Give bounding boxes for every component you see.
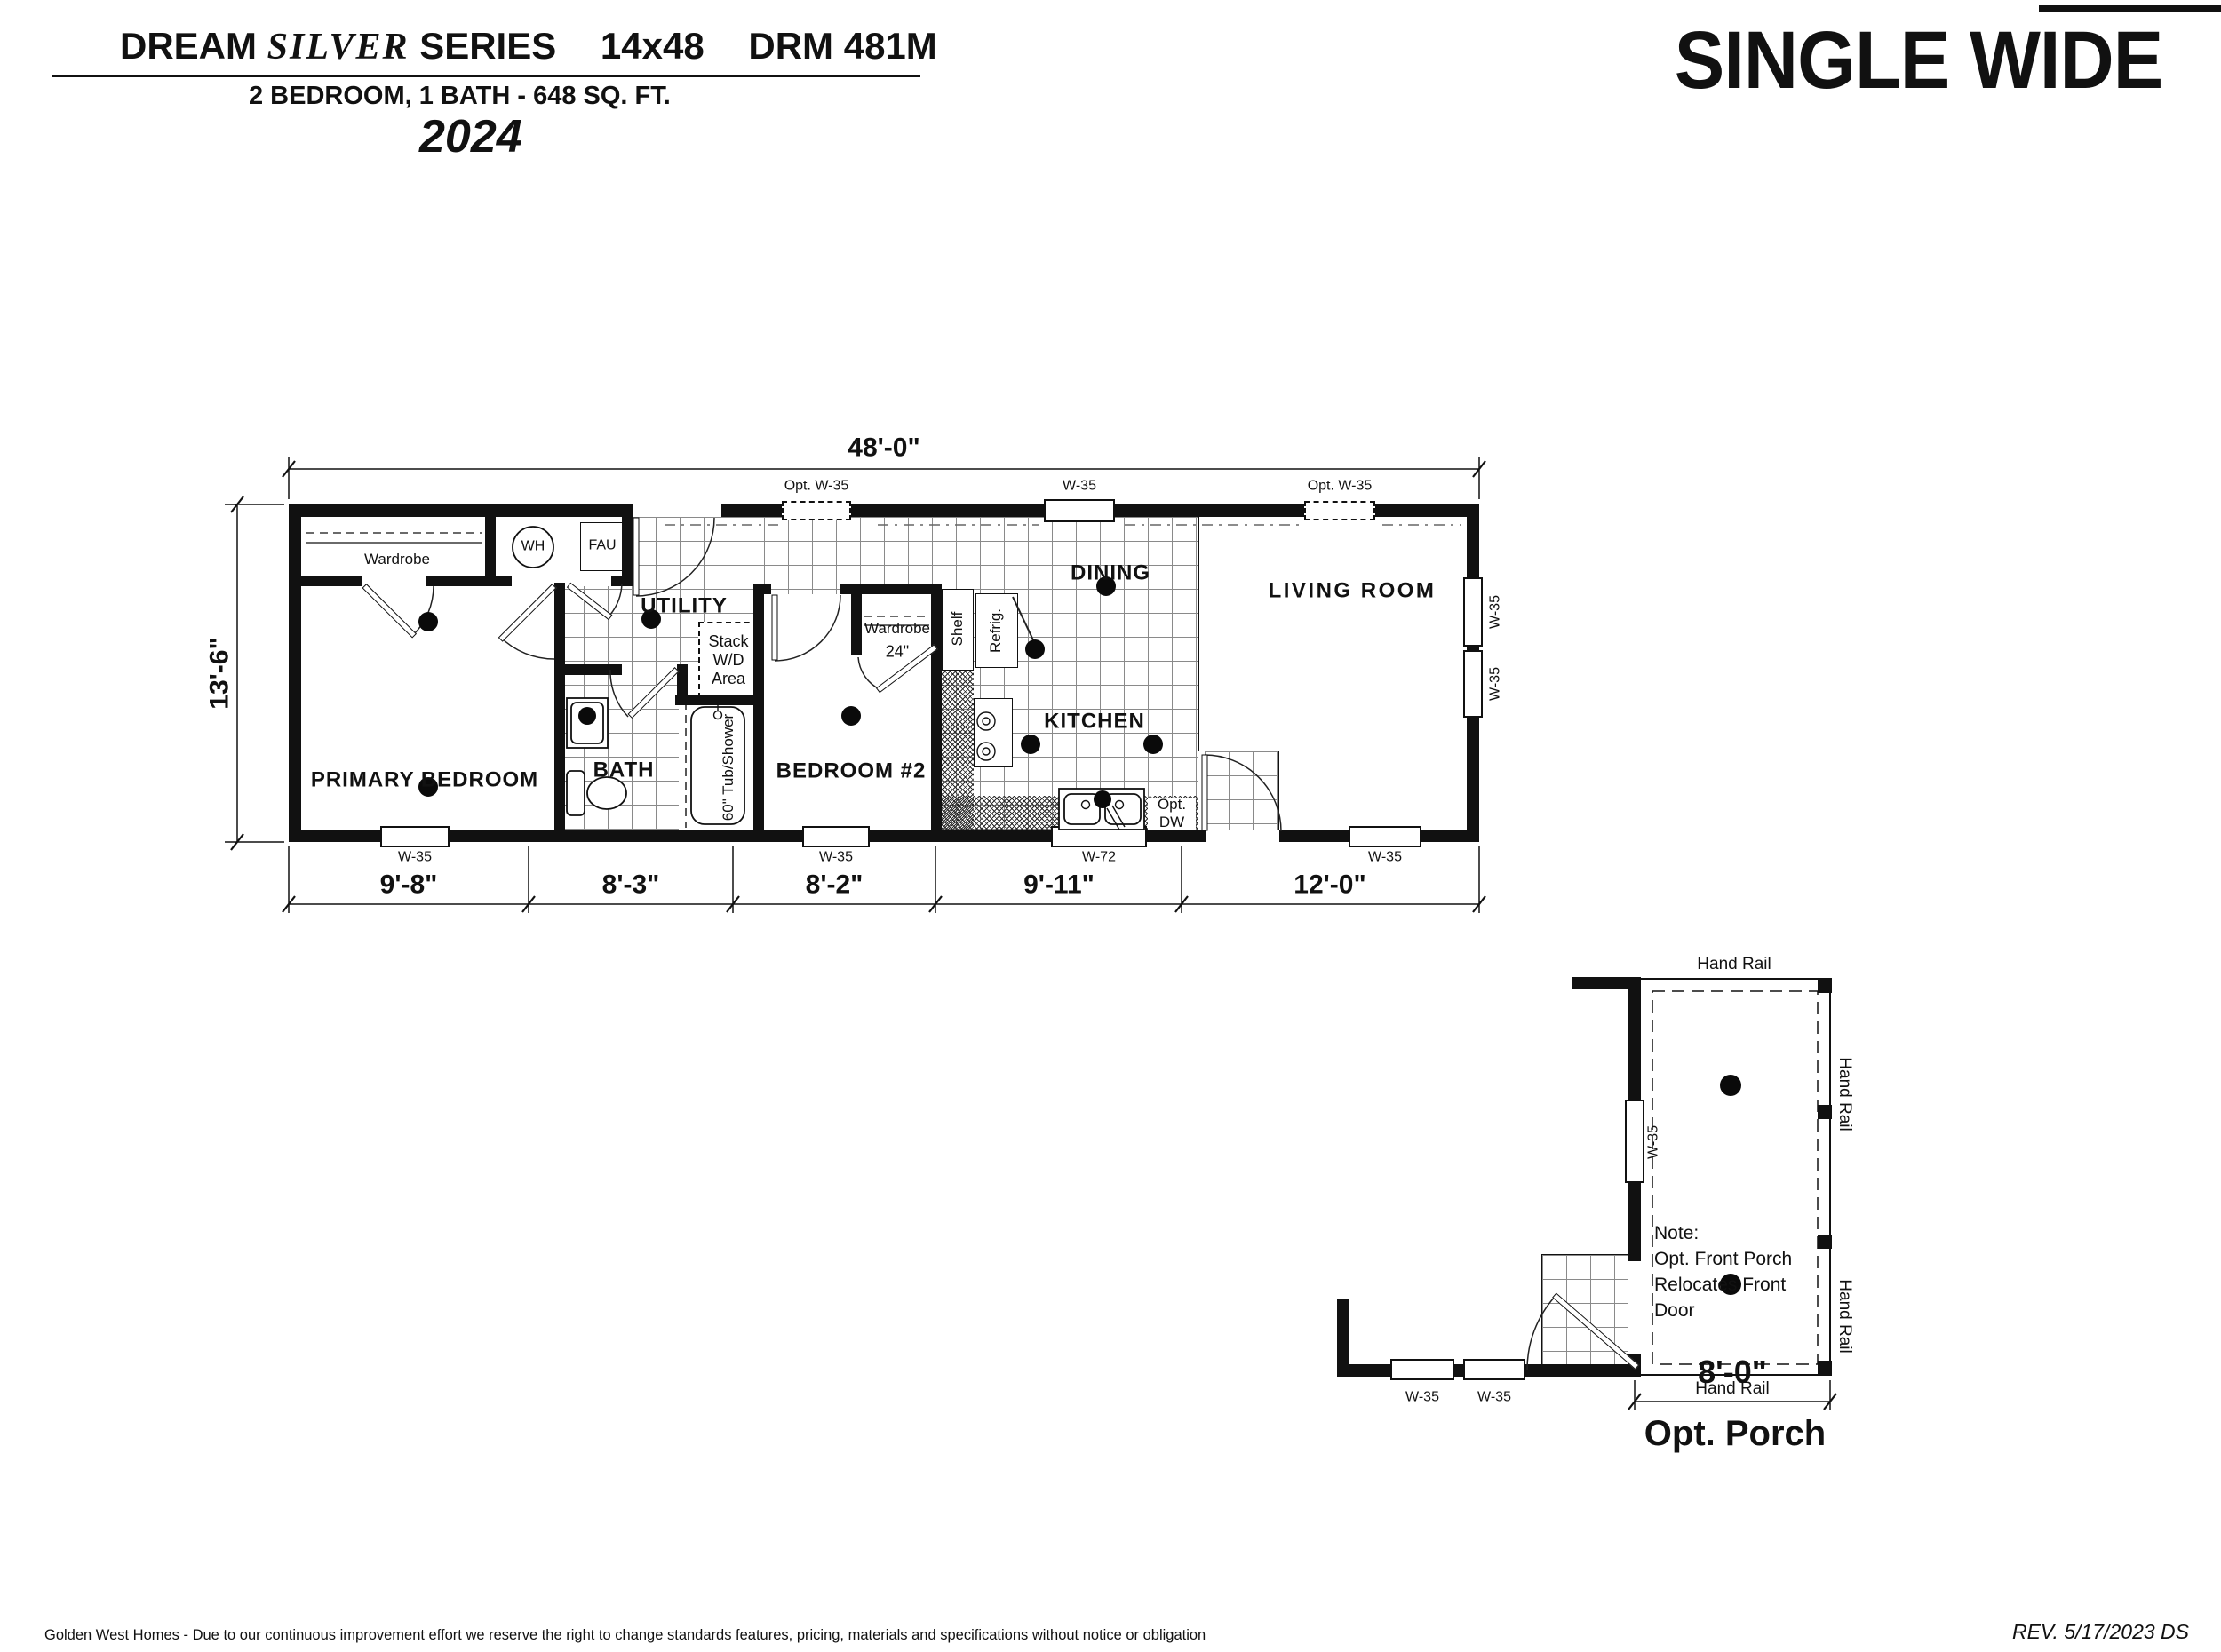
window-w35-bottom-2 [802,826,870,847]
range [974,698,1013,767]
primary-bedroom-door [362,584,418,639]
stack-wd-label-2: W/D [713,651,744,670]
closet-wall-bottom-a [485,576,512,586]
window-w35-bottom-3 [1349,826,1421,847]
wardrobe-label: Wardrobe [364,552,430,568]
room-bath: BATH [593,758,655,781]
porch-dim: 8'-0" [1698,1355,1767,1389]
porch-post-1 [1818,979,1832,993]
porch-left-wall [1337,1299,1349,1377]
entry-tile-floor [1205,751,1279,830]
room-utility: UTILITY [641,594,728,616]
wd-wall-bottom [675,695,764,705]
disclaimer-text: Golden West Homes - Due to our continuou… [44,1627,1206,1644]
front-door-opening [1206,830,1279,842]
stack-wd-label-1: Stack [708,632,748,651]
porch-post-3 [1818,1235,1832,1249]
title-underline [52,75,920,77]
porch-handrail-top: Hand Rail [1697,956,1771,973]
wardrobe2-size-label: 24" [886,644,909,661]
wardrobe-wall-a [301,576,362,586]
dim-seg-3: 8'-2" [806,870,864,899]
wardrobe2-label: Wardrobe [864,621,930,637]
room-bedroom2: BEDROOM #2 [776,759,927,782]
floor-boundary-line [1198,517,1199,751]
stack-wd-label-3: Area [712,670,745,688]
porch-window-w35-end [1625,1100,1644,1183]
closet-wall-left [485,504,496,586]
opt-dw-label-2: DW [1159,814,1184,830]
dim-seg-2: 8'-3" [602,870,660,899]
label-w35-right-1: W-35 [1489,595,1504,629]
label-w35-bottom-2: W-35 [819,851,853,866]
dim-overall-height: 13'-6" [205,637,234,709]
brand-series-word: SERIES [419,25,556,67]
window-w35-top [1044,499,1115,522]
window-opt-w35-top-1 [782,501,851,520]
porch-note-line-2: Opt. Front Porch [1654,1246,1792,1272]
window-w35-right-1 [1463,577,1483,647]
room-kitchen: KITCHEN [1044,710,1145,732]
front-door [1202,755,1208,831]
porch-window-label-a: W-35 [1405,1391,1439,1406]
wh-label: WH [521,540,545,555]
porch-handrail-right-2: Hand Rail [1835,1279,1853,1353]
window-w35-right-2 [1463,650,1483,718]
opt-dw-label-1: Opt. [1158,797,1186,813]
window-opt-w35-top-2 [1304,501,1375,520]
back-door [633,518,640,596]
porch-window-label-end: W-35 [1647,1125,1662,1159]
brand-series-name: SILVER [267,27,410,68]
label-opt-w35-top-2: Opt. W-35 [1308,480,1373,495]
porch-note-line-1: Note: [1654,1220,1792,1246]
bedroom2-wall-left [753,584,764,842]
room-primary-bedroom: PRIMARY BEDROOM [311,768,538,790]
closet-wall-right [622,504,633,586]
title-block: DREAM SILVER SERIES 14x48 DRM 481M [120,25,937,68]
room-living: LIVING ROOM [1269,579,1437,601]
stack-washer-dryer-area: Stack W/D Area [698,622,759,698]
label-w35-bottom-1: W-35 [398,851,432,866]
exterior-wall-top [289,504,1479,517]
brand-name: DREAM [120,25,257,67]
window-w35-bottom-1 [380,826,450,847]
wardrobe2-pillar [851,589,862,655]
exterior-wall-left [289,504,301,842]
porch-post-2 [1818,1105,1832,1119]
dim-seg-4: 9'-11" [1023,870,1095,899]
porch-handrail-right-1: Hand Rail [1835,1057,1853,1131]
bedroom2-wall-top-a [753,584,771,594]
label-w35-top: W-35 [1063,480,1096,495]
model-number: DRM 481M [748,25,936,67]
porch-bottom-wall-right [1541,1364,1641,1377]
home-type-label: SINGLE WIDE [1675,14,2162,107]
tub-label: 60" Tub/Shower [720,714,736,821]
porch-note-line-3: Relocates Front [1654,1272,1792,1298]
porch-window-w35-a [1390,1359,1454,1380]
label-opt-w35-top-1: Opt. W-35 [784,480,849,495]
revision-text: REV. 5/17/2023 DS [2012,1620,2189,1644]
shelf-label: Shelf [950,612,966,647]
subtitle: 2 BEDROOM, 1 BATH - 648 SQ. FT. [249,82,671,111]
year-label: 2024 [419,110,522,163]
room-dining: DINING [1071,561,1150,584]
sheet-corner-rule [2039,5,2221,12]
refrig-label: Refrig. [988,608,1004,653]
dim-seg-5: 12'-0" [1294,870,1365,899]
back-door-opening [633,504,721,517]
porch-title: Opt. Porch [1644,1415,1826,1452]
bedroom2-door [772,595,778,661]
fau-label: FAU [588,539,616,554]
primary-bedroom-wall [554,583,565,842]
floorplan-sheet: DREAM SILVER SERIES 14x48 DRM 481M 2 BED… [0,0,2221,1652]
closet-door-left [498,584,557,642]
bath-wall-top [565,664,622,675]
porch-note: Note: Opt. Front Porch Relocates Front D… [1654,1220,1792,1323]
label-w35-bottom-3: W-35 [1368,851,1402,866]
label-w72-bottom: W-72 [1082,851,1116,866]
porch-window-w35-b [1463,1359,1525,1380]
porch-post-4 [1818,1361,1832,1375]
porch-note-line-4: Door [1654,1298,1792,1323]
model-size: 14x48 [601,25,705,67]
dim-overall-width: 48'-0" [848,433,919,462]
kitchen-wall [931,584,942,842]
wardrobe-wall-b [426,576,487,586]
label-w35-right-2: W-35 [1489,667,1504,701]
dim-seg-1: 9'-8" [380,870,438,899]
exterior-wall-bottom [289,830,1479,842]
window-w72-bottom [1051,826,1147,847]
porch-window-label-b: W-35 [1477,1391,1511,1406]
